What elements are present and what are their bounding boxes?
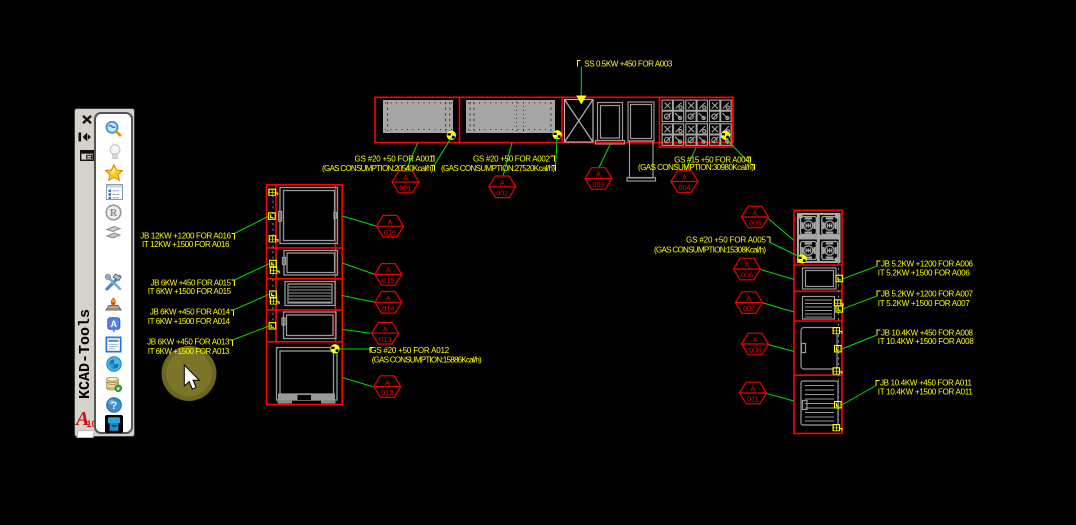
svg-text:IT 5.2KW +1500 FOR A007: IT 5.2KW +1500 FOR A007 — [878, 299, 971, 308]
svg-text:A: A — [386, 296, 391, 303]
svg-text:GS #20 +50 FOR A001: GS #20 +50 FOR A001 — [355, 154, 435, 163]
svg-text:(GAS CONSUMPTION:30980Kcal/h): (GAS CONSUMPTION:30980Kcal/h) — [638, 163, 754, 172]
svg-text:IT 6KW +1500 FOR A014: IT 6KW +1500 FOR A014 — [148, 317, 231, 326]
svg-text:A: A — [747, 296, 752, 303]
svg-text:GS #20 +50 FOR A002: GS #20 +50 FOR A002 — [473, 154, 551, 163]
svg-text:GS #20 +50 FOR A012: GS #20 +50 FOR A012 — [370, 346, 450, 355]
svg-text:A: A — [682, 175, 687, 182]
svg-text:A: A — [753, 337, 758, 344]
svg-text:016: 016 — [384, 228, 396, 237]
svg-text:A: A — [403, 175, 408, 182]
svg-text:JB 6KW +450 FOR A015: JB 6KW +450 FOR A015 — [151, 278, 232, 287]
svg-text:JB 5.2KW +1200 FOR A006: JB 5.2KW +1200 FOR A006 — [881, 259, 974, 268]
svg-text:A: A — [500, 180, 505, 187]
svg-text:SS 0.5KW +450 FOR A003: SS 0.5KW +450 FOR A003 — [584, 59, 673, 68]
svg-text:IT 10.4KW +1500 FOR A008: IT 10.4KW +1500 FOR A008 — [878, 337, 975, 346]
svg-text:A: A — [751, 386, 756, 393]
svg-text:013: 013 — [379, 335, 391, 344]
svg-text:IT 10.4KW +1500 FOR A011: IT 10.4KW +1500 FOR A011 — [878, 388, 974, 397]
svg-text:JB 6KW +450 FOR A013: JB 6KW +450 FOR A013 — [147, 338, 230, 347]
svg-text:A: A — [388, 219, 393, 226]
svg-text:011: 011 — [747, 395, 759, 404]
svg-text:007: 007 — [743, 304, 755, 313]
svg-text:(GAS CONSUMPTION:20540Kcal/h): (GAS CONSUMPTION:20540Kcal/h) — [322, 164, 434, 173]
svg-text:(GAS CONSUMPTION:15308Kcal/h): (GAS CONSUMPTION:15308Kcal/h) — [654, 245, 766, 254]
svg-text:R: R — [110, 208, 118, 219]
svg-text:GS #20 +50 FOR A005: GS #20 +50 FOR A005 — [686, 236, 767, 245]
svg-text:JB 12KW +1200 FOR A016: JB 12KW +1200 FOR A016 — [140, 231, 231, 240]
svg-text:A: A — [596, 172, 601, 179]
svg-text:A: A — [745, 262, 750, 269]
svg-text:IT 6KW +1500 FOR A015: IT 6KW +1500 FOR A015 — [148, 287, 232, 296]
svg-text:IT 5.2KW +1500 FOR A006: IT 5.2KW +1500 FOR A006 — [878, 268, 971, 277]
svg-text:002: 002 — [496, 188, 508, 197]
svg-text:004: 004 — [678, 183, 690, 192]
svg-text:JB 10.4KW +450 FOR A008: JB 10.4KW +450 FOR A008 — [881, 328, 974, 337]
svg-text:JB 6KW +450 FOR A014: JB 6KW +450 FOR A014 — [150, 308, 231, 317]
svg-text:001: 001 — [399, 184, 411, 193]
svg-text:?: ? — [111, 400, 118, 412]
svg-text:A: A — [385, 380, 390, 387]
svg-text:JB 5.2KW +1200 FOR A007: JB 5.2KW +1200 FOR A007 — [881, 290, 974, 299]
svg-text:(GAS CONSUMPTION:15886Kcal/h): (GAS CONSUMPTION:15886Kcal/h) — [372, 356, 482, 365]
svg-text:JB 10.4KW +450 FOR A011: JB 10.4KW +450 FOR A011 — [880, 379, 973, 388]
svg-text:IT 6KW +1500 FOR A013: IT 6KW +1500 FOR A013 — [148, 347, 230, 356]
svg-text:012: 012 — [381, 388, 393, 397]
svg-text:008: 008 — [749, 346, 761, 355]
svg-text:003: 003 — [592, 180, 604, 189]
svg-text:A: A — [386, 268, 391, 275]
svg-text:015: 015 — [382, 276, 394, 285]
svg-text:A: A — [753, 210, 758, 217]
svg-text:IT 12KW +1500 FOR A016: IT 12KW +1500 FOR A016 — [142, 240, 230, 249]
svg-text:006: 006 — [741, 271, 753, 280]
svg-text:A: A — [111, 319, 118, 329]
svg-text:(GAS CONSUMPTION:27520Kcal/h): (GAS CONSUMPTION:27520Kcal/h) — [441, 164, 555, 173]
svg-text:A: A — [383, 326, 388, 333]
svg-text:014: 014 — [382, 304, 394, 313]
svg-text:005: 005 — [749, 219, 761, 228]
